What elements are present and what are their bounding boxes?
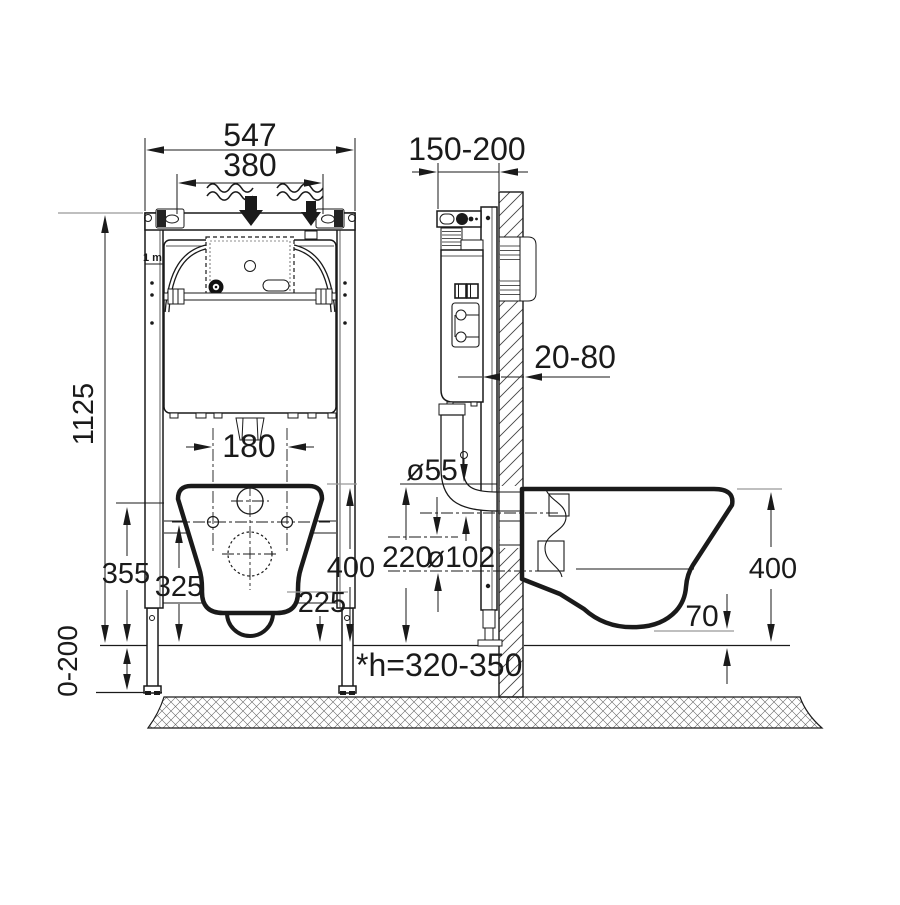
dim-70-label: 70 (685, 600, 718, 633)
fill-valve-knob (209, 280, 224, 295)
dim-400-side: 400 (737, 489, 797, 642)
dim-o102-label: ø102 (427, 541, 495, 574)
dim-355-label: 355 (102, 558, 150, 590)
dim-220-label: 220 (382, 541, 432, 574)
dim-400-side-label: 400 (749, 553, 797, 585)
installation-drawing: 1 m (0, 0, 900, 900)
cistern-front: 1 m (143, 231, 336, 440)
frame-foot-side (478, 640, 502, 646)
dim-400-front-label: 400 (327, 552, 375, 584)
dim-180: 180 (186, 428, 314, 464)
dim-0-200: 0-200 (52, 625, 131, 697)
floor-slab (148, 697, 822, 728)
dim-0-200-label: 0-200 (52, 625, 83, 697)
meter-mark-label: 1 m (143, 252, 162, 264)
top-wall-bracket (437, 211, 481, 227)
note-h-label: *h=320-350 (356, 647, 522, 683)
dim-380-label: 380 (223, 147, 276, 183)
dim-180-label: 180 (222, 428, 275, 464)
wall-section (497, 192, 523, 697)
actuator-plate-housing (520, 237, 536, 301)
dim-o55-label: ø55 (406, 454, 458, 487)
dim-1125-label: 1125 (68, 383, 100, 445)
dim-150-200-label: 150-200 (408, 131, 525, 167)
technical-drawing-page: 1 m (0, 0, 900, 900)
dim-325-label: 325 (155, 571, 203, 603)
dim-225-label: 225 (298, 587, 346, 619)
dim-20-80-label: 20-80 (534, 339, 616, 375)
